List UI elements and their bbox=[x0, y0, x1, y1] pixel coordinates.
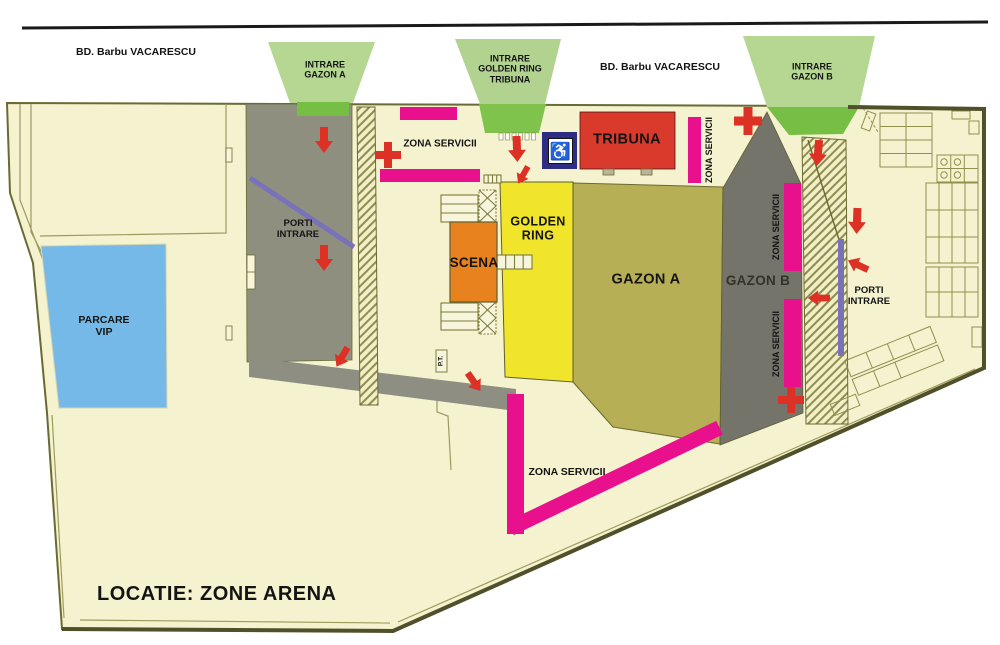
scena-label: SCENA bbox=[450, 255, 499, 271]
street-label-left: BD. Barbu VACARESCU bbox=[76, 46, 196, 58]
pt-label: P.T. bbox=[437, 356, 444, 366]
tribuna-label: TRIBUNA bbox=[593, 132, 661, 149]
zona-servicii-bottom-label: ZONA SERVICII bbox=[528, 466, 605, 478]
hatched-strip-left bbox=[357, 107, 378, 405]
entrance-gazon-b-label: INTRAREGAZON B bbox=[791, 62, 833, 83]
porti-intrare-right-label: PORTIINTRARE bbox=[848, 286, 890, 308]
zona-servicii-gazon-b-upper-label: ZONA SERVICII bbox=[771, 194, 781, 260]
map-title: LOCATIE: ZONE ARENA bbox=[97, 583, 337, 606]
map-graphics bbox=[0, 0, 1000, 645]
zona-servicii-tribuna-label: ZONA SERVICII bbox=[704, 117, 714, 183]
gazon-a-label: GAZON A bbox=[611, 272, 680, 289]
wheelchair-icon: ♿ bbox=[548, 138, 573, 164]
porti-intrare-left-label: PORTIINTRARE bbox=[277, 219, 319, 241]
entrance-golden-ring-label: INTRARE GOLDEN RING TRIBUNA bbox=[478, 53, 542, 84]
street-label-right: BD. Barbu VACARESCU bbox=[600, 61, 720, 73]
street-edge-line bbox=[22, 22, 988, 28]
gazon-b-label: GAZON B bbox=[726, 273, 790, 289]
parcare-vip-label: PARCAREVIP bbox=[78, 314, 129, 338]
gazon-a-area bbox=[573, 183, 723, 444]
entrance-gazon-a-label: INTRAREGAZON A bbox=[304, 60, 345, 81]
zona-servicii-top-label: ZONA SERVICII bbox=[403, 138, 476, 150]
golden-ring-label: GOLDENRING bbox=[510, 215, 565, 244]
golden-ring-area bbox=[500, 182, 573, 382]
venue-map: BD. Barbu VACARESCU BD. Barbu VACARESCU … bbox=[0, 0, 1000, 645]
zona-servicii-gazon-b-lower-label: ZONA SERVICII bbox=[771, 311, 781, 377]
